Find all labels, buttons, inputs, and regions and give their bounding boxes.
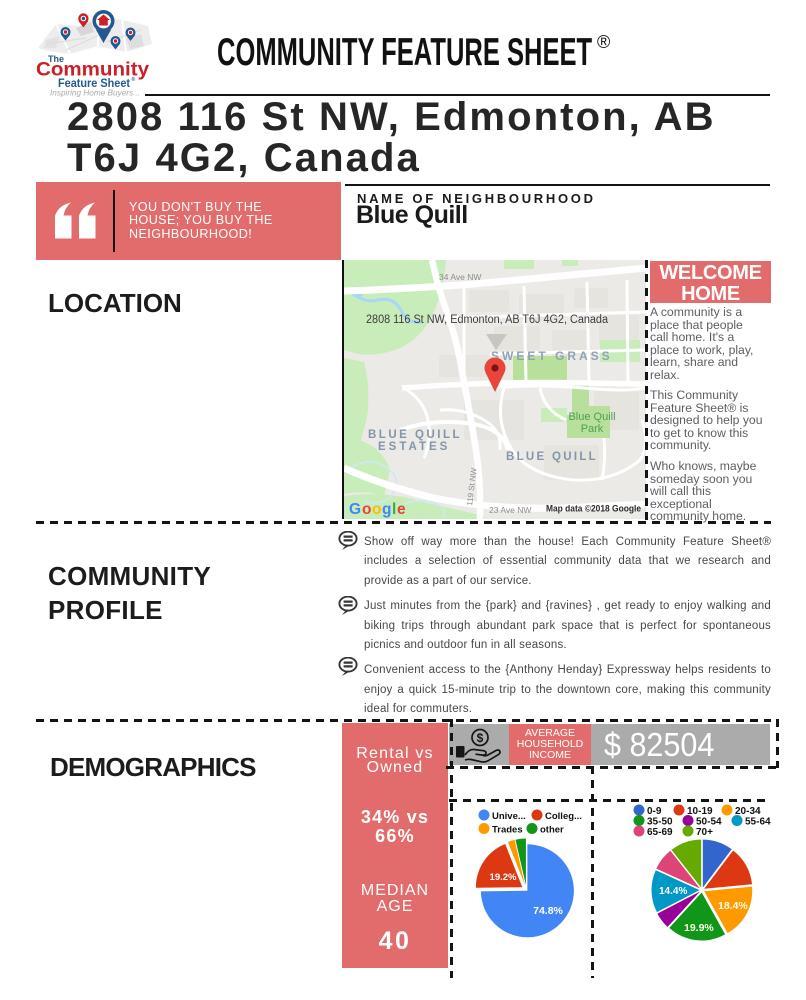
svg-text:e: e <box>397 501 406 518</box>
svg-text:35-50: 35-50 <box>647 817 673 828</box>
svg-text:55-64: 55-64 <box>745 817 771 828</box>
svg-text:65-69: 65-69 <box>647 827 673 838</box>
svg-text:o: o <box>372 501 381 518</box>
svg-text:BLUE QUILL: BLUE QUILL <box>368 429 462 441</box>
svg-text:Blue Quill: Blue Quill <box>568 411 615 423</box>
svg-text:14.4%: 14.4% <box>659 886 687 897</box>
svg-text:other: other <box>540 825 564 836</box>
svg-text:70+: 70+ <box>696 827 713 838</box>
svg-text:SWEET GRASS: SWEET GRASS <box>491 349 613 363</box>
svg-text:o: o <box>362 501 371 518</box>
svg-text:23 Ave NW: 23 Ave NW <box>489 505 531 515</box>
svg-text:50-54: 50-54 <box>696 817 722 828</box>
svg-text:74.8%: 74.8% <box>533 905 563 917</box>
svg-text:BLUE QUILL: BLUE QUILL <box>506 451 598 463</box>
svg-text:Unive...: Unive... <box>492 811 526 822</box>
svg-text:g: g <box>382 501 391 518</box>
svg-text:18.4%: 18.4% <box>718 900 748 912</box>
svg-text:Park: Park <box>580 423 603 435</box>
svg-text:19.2%: 19.2% <box>490 872 517 883</box>
svg-text:l: l <box>392 501 396 518</box>
svg-text:Map data ©2018 Google: Map data ©2018 Google <box>546 504 641 515</box>
svg-text:0-9: 0-9 <box>647 806 662 817</box>
svg-text:G: G <box>349 501 361 518</box>
svg-text:$: $ <box>477 731 484 745</box>
svg-text:ESTATES: ESTATES <box>378 441 450 453</box>
svg-text:Colleg...: Colleg... <box>545 811 582 822</box>
svg-text:Trades: Trades <box>492 825 523 836</box>
svg-text:19.9%: 19.9% <box>684 922 714 934</box>
svg-text:10-19: 10-19 <box>687 806 713 817</box>
svg-text:2808 116 St NW, Edmonton, AB T: 2808 116 St NW, Edmonton, AB T6J 4G2, Ca… <box>366 314 609 326</box>
svg-text:®: ® <box>132 76 136 83</box>
svg-text:34 Ave NW: 34 Ave NW <box>439 272 481 282</box>
